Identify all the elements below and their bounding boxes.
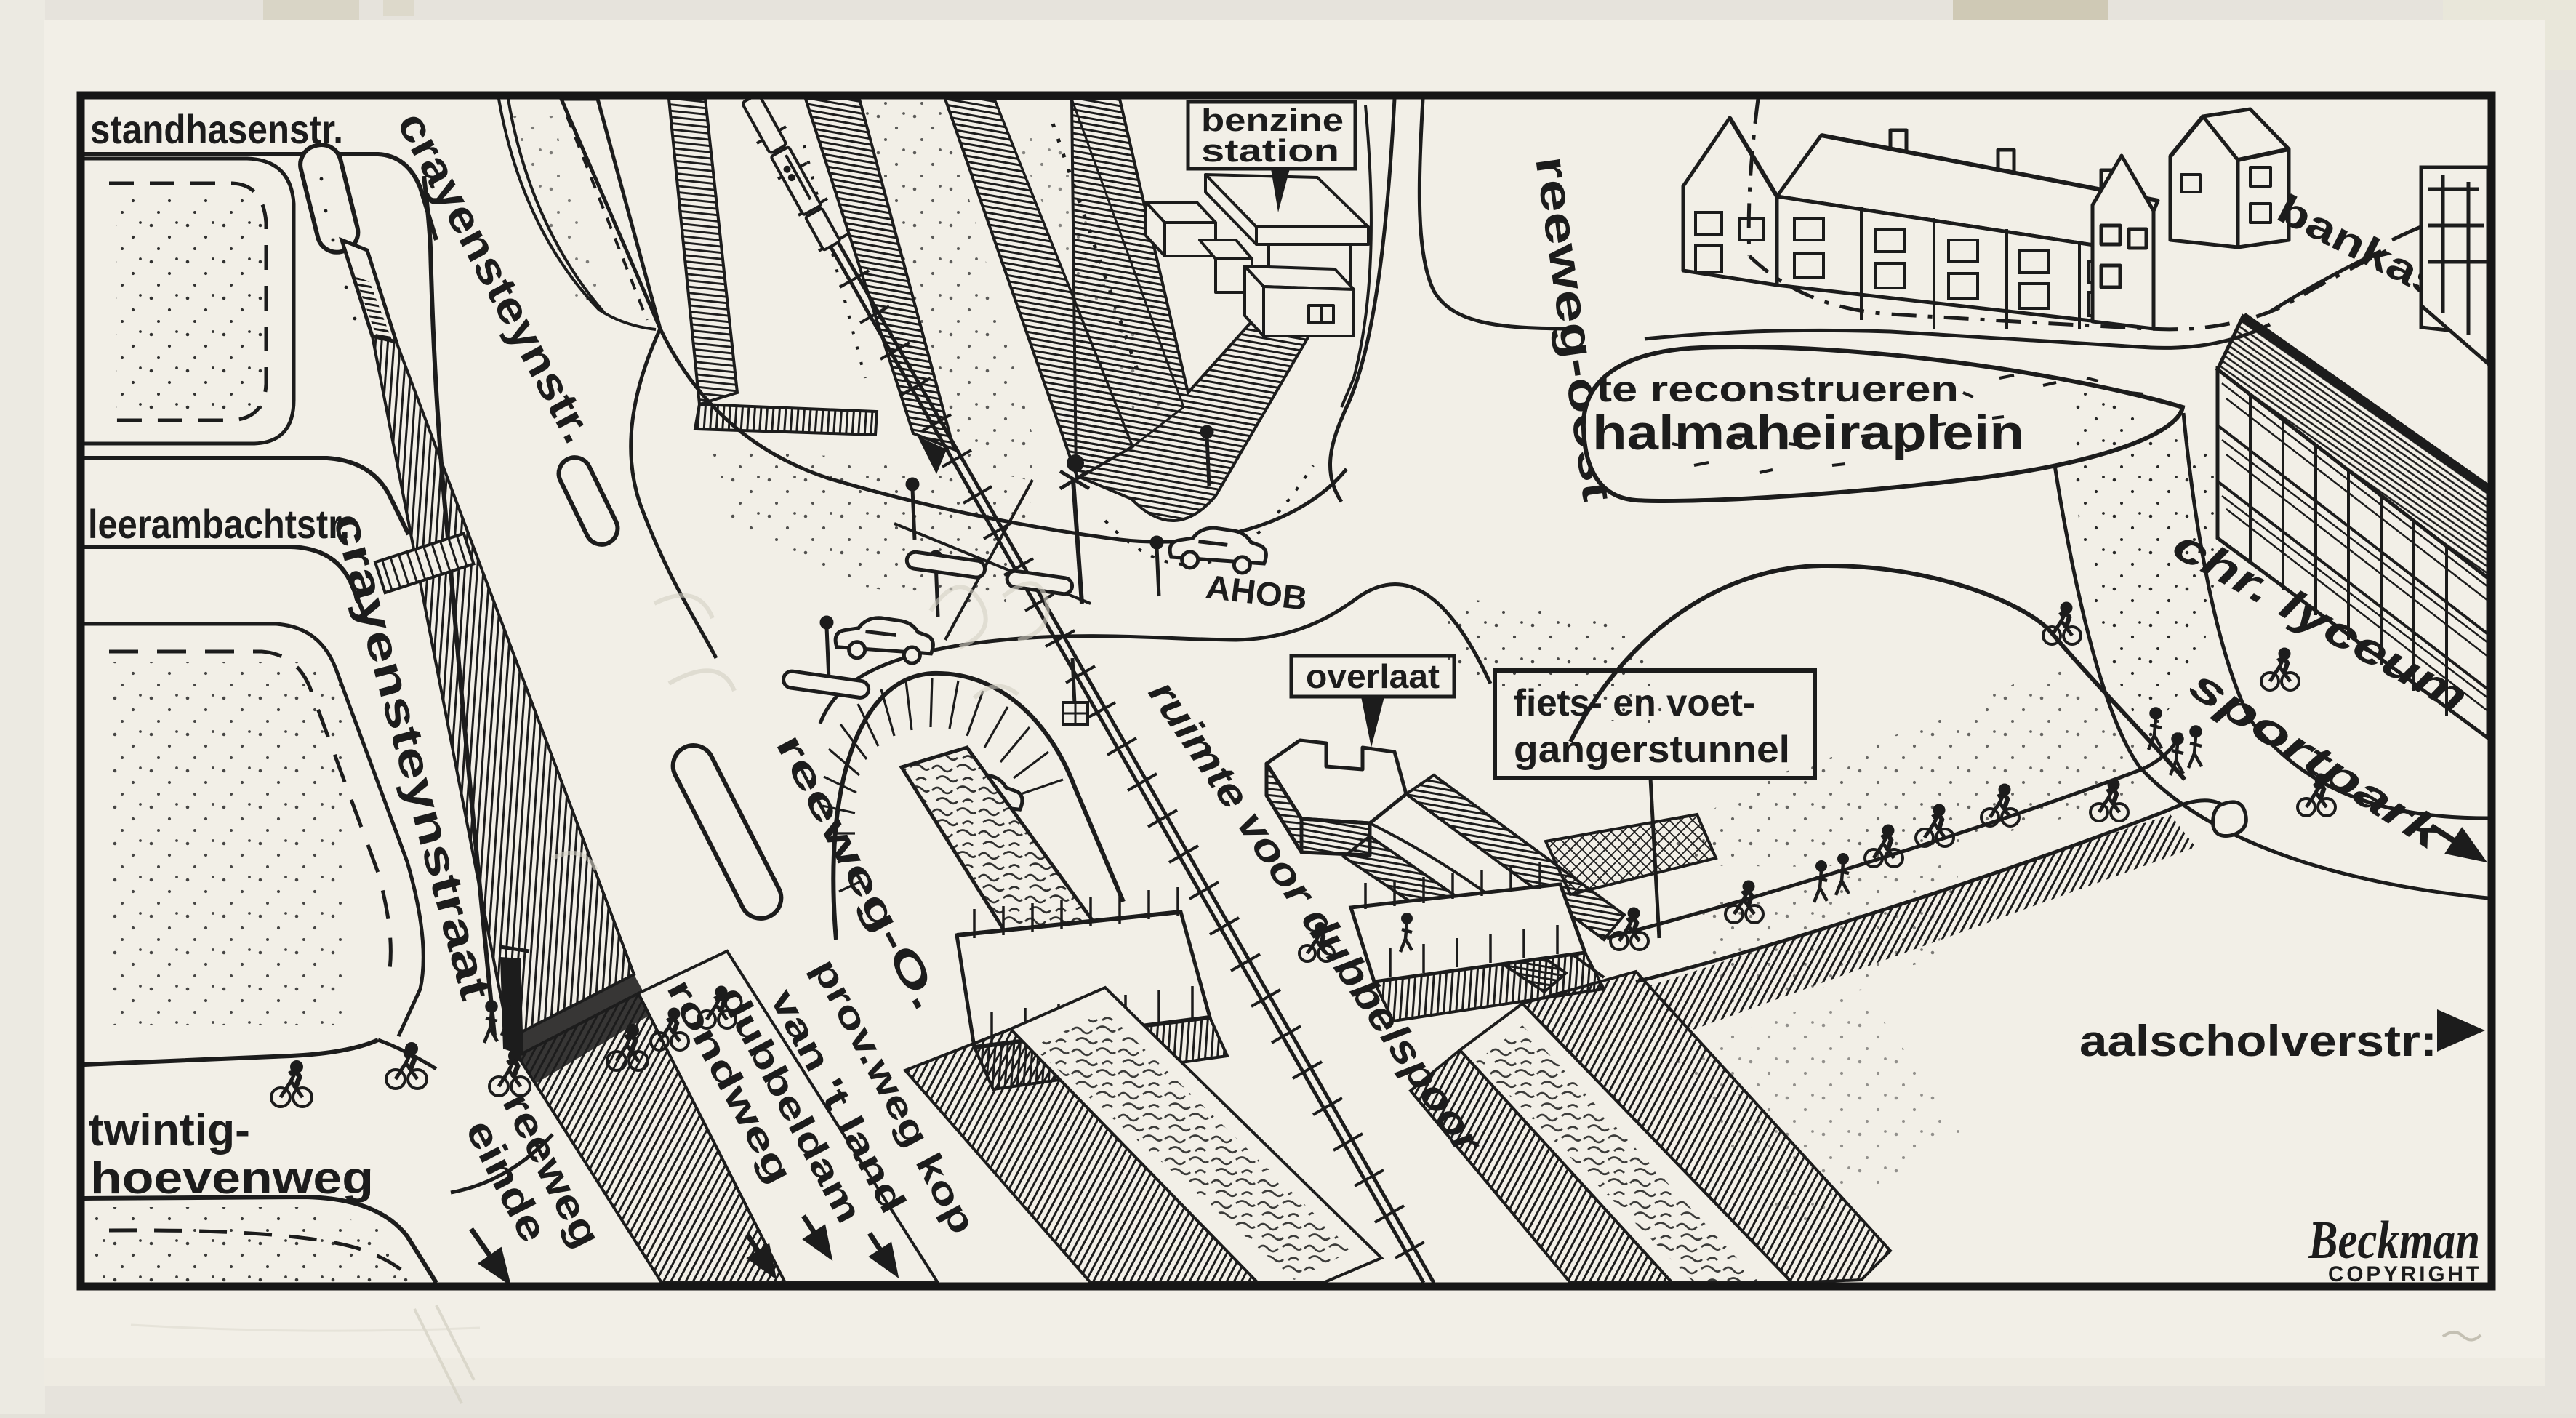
svg-text:overlaat: overlaat bbox=[1306, 657, 1440, 695]
svg-text:station: station bbox=[1201, 133, 1339, 169]
svg-text:standhasenstr.: standhasenstr. bbox=[90, 106, 343, 152]
svg-text:halmaheiraplein: halmaheiraplein bbox=[1592, 405, 2024, 460]
svg-text:leerambachtstr.: leerambachtstr. bbox=[88, 501, 350, 547]
svg-text:gangerstunnel: gangerstunnel bbox=[1514, 729, 1790, 771]
svg-text:twintig-: twintig- bbox=[89, 1105, 250, 1155]
svg-text:te reconstrueren: te reconstrueren bbox=[1597, 369, 1959, 409]
svg-text:aalscholverstr:: aalscholverstr: bbox=[2079, 1017, 2437, 1065]
svg-text:hoevenweg: hoevenweg bbox=[90, 1153, 374, 1203]
svg-text:Beckman: Beckman bbox=[2308, 1211, 2480, 1270]
